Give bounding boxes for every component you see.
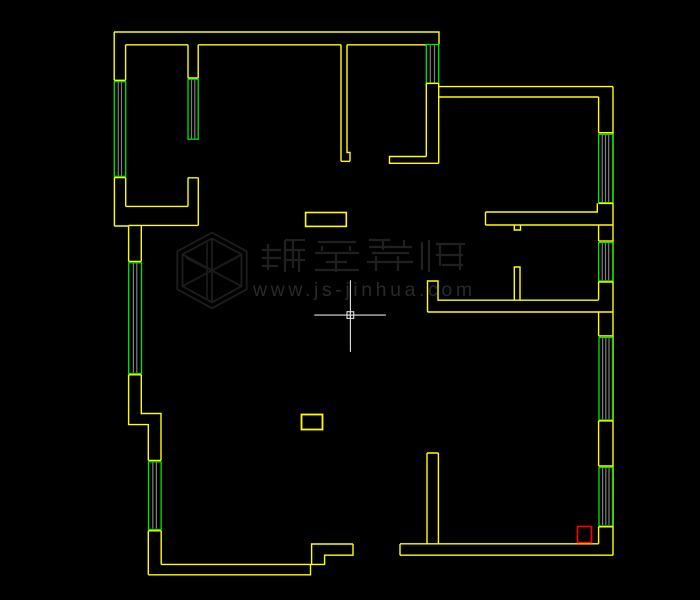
svg-text:www.js-jinhua.com: www.js-jinhua.com <box>252 279 476 301</box>
